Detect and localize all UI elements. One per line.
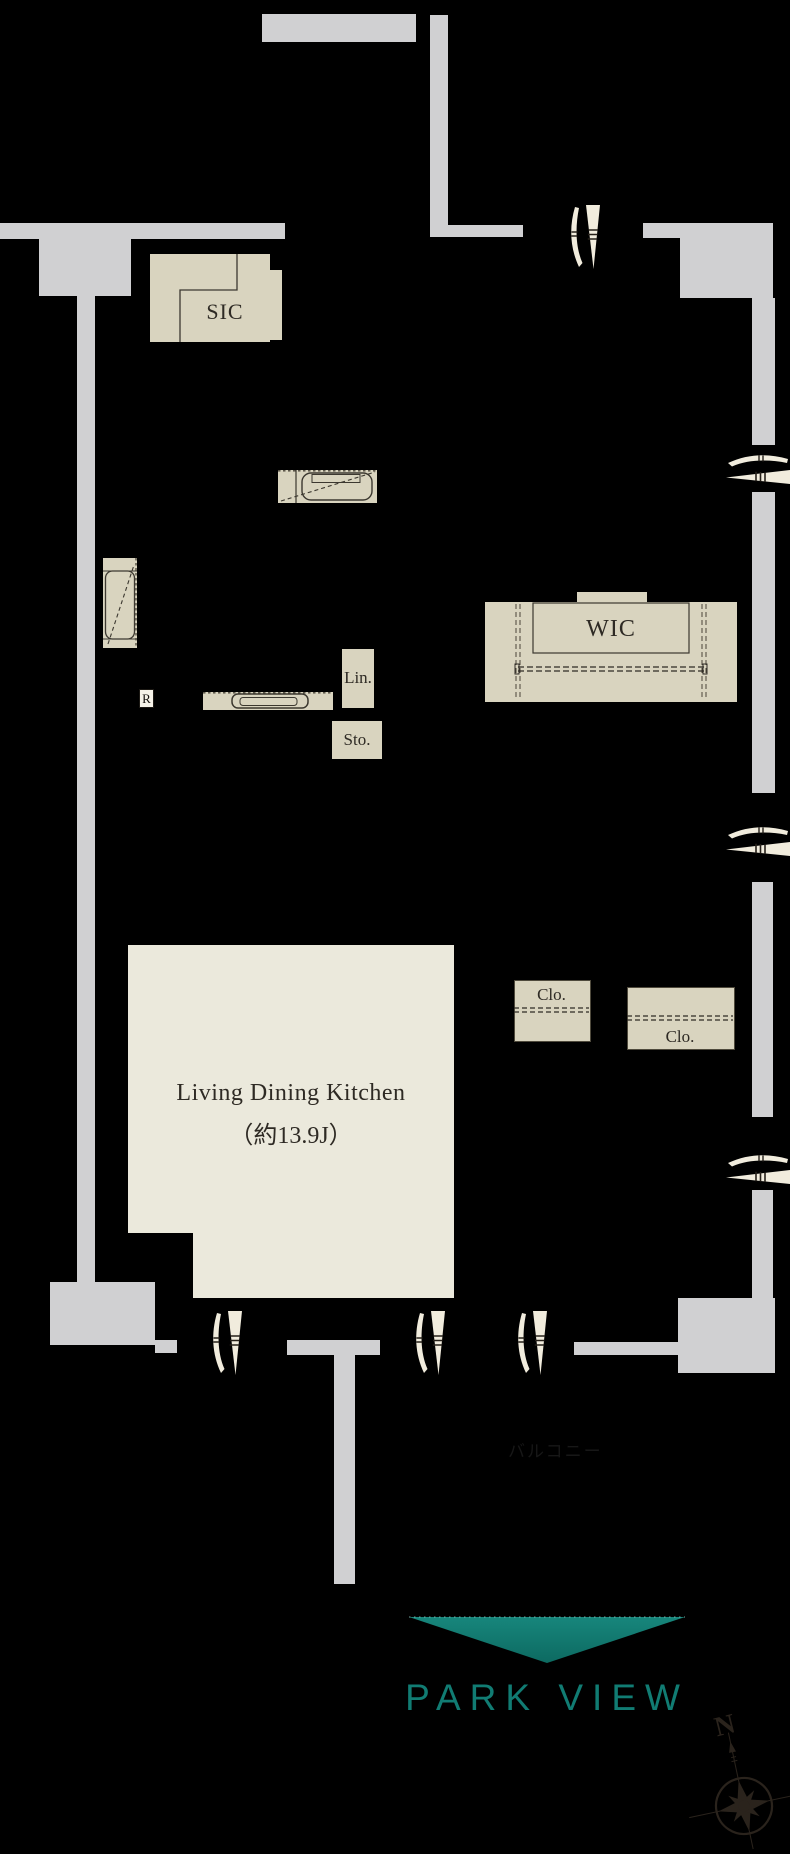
- balcony-label: バルコニー: [508, 1443, 608, 1460]
- park-view-caption: PARK VIEW: [405, 1677, 689, 1719]
- sic-partition-line: [180, 254, 237, 342]
- wic-label: WIC: [533, 617, 689, 641]
- park-view-triangle: [409, 1617, 685, 1663]
- closet-b-label: Clo.: [627, 1028, 733, 1045]
- floor-plan-canvas: N SIC WIC Lin. Sto. Clo. Clo. R Living D…: [0, 0, 790, 1854]
- sic-label: SIC: [180, 301, 270, 323]
- side-window-symbol-1: [726, 455, 790, 484]
- ldk-room-label: Living Dining Kitchen: [128, 1081, 454, 1105]
- washbasin-detail: [278, 470, 377, 503]
- balcony-window-symbol-1: [213, 1311, 242, 1375]
- storage-label: Sto.: [332, 731, 382, 748]
- kitchen-sink-detail: [203, 693, 333, 708]
- refrigerator-marker: R: [139, 689, 154, 708]
- ldk-size-label: （約13.9J）: [128, 1124, 454, 1148]
- plan-linework: N: [0, 0, 790, 1854]
- washing-machine-detail: [103, 558, 137, 648]
- compass-rose-icon: [674, 1721, 790, 1854]
- compass-north-label: N: [711, 1708, 738, 1743]
- side-window-symbol-2: [726, 827, 790, 856]
- side-window-symbol-3: [726, 1155, 790, 1184]
- linen-label: Lin.: [340, 669, 376, 686]
- entrance-door-symbol: [571, 205, 600, 269]
- closet-b-rail: [627, 1016, 733, 1020]
- closet-a-rail: [514, 1008, 589, 1012]
- balcony-window-symbol-2: [416, 1311, 445, 1375]
- closet-a-label: Clo.: [514, 986, 589, 1003]
- balcony-window-symbol-3: [518, 1311, 547, 1375]
